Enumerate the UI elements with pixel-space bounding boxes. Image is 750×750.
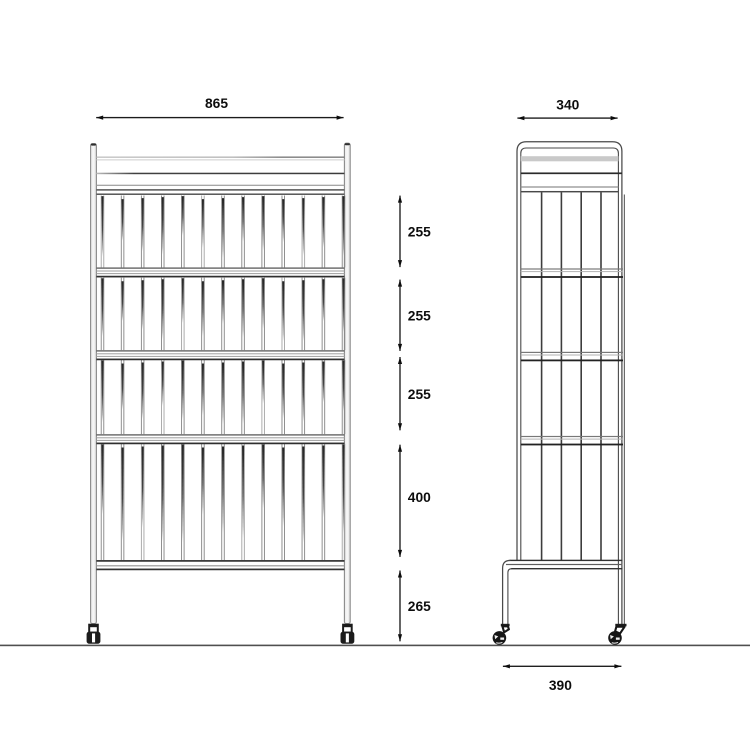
svg-text:390: 390 [549,678,572,693]
svg-text:255: 255 [408,225,431,240]
svg-text:255: 255 [408,309,431,324]
svg-text:400: 400 [408,490,431,505]
svg-text:340: 340 [556,97,579,112]
svg-text:865: 865 [205,96,228,111]
svg-text:255: 255 [408,387,431,402]
svg-text:265: 265 [408,599,431,614]
